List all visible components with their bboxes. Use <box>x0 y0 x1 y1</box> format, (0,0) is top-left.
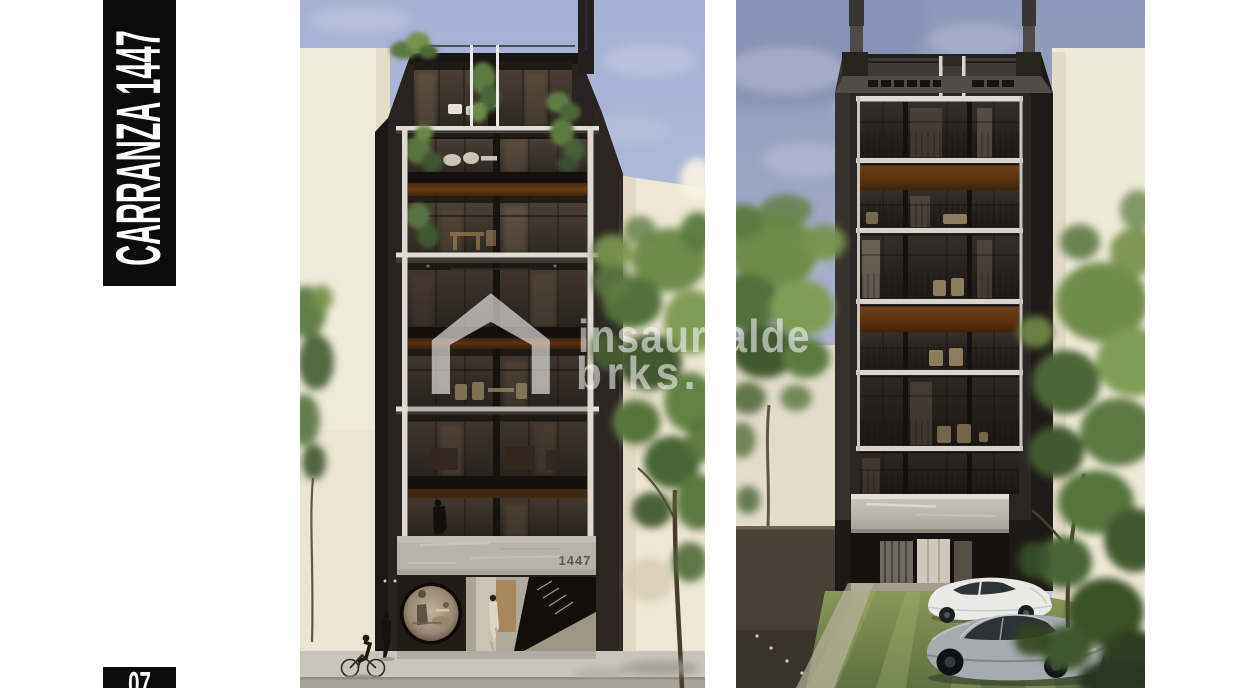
svg-text:brks.: brks. <box>576 348 700 399</box>
